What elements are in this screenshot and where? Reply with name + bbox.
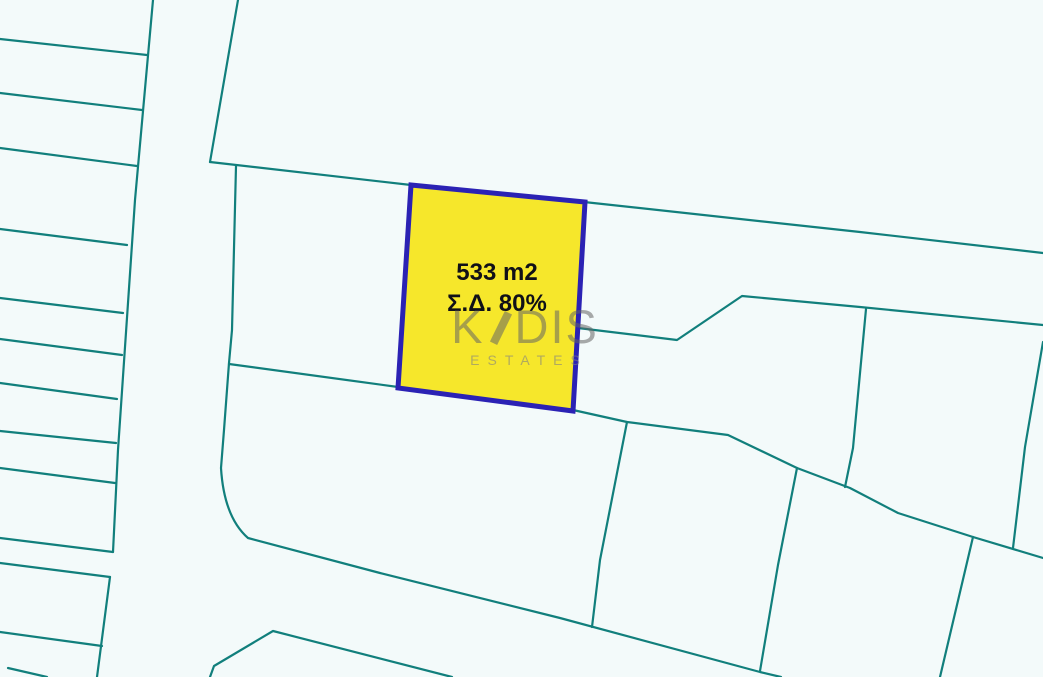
- watermark-letter-a-icon: [489, 311, 511, 345]
- west-parcel-line-7: [0, 383, 117, 399]
- plot-area-label: 533 m2: [412, 257, 582, 288]
- west-parcel-line-1: [0, 39, 147, 55]
- west-parcel-line-3: [0, 148, 137, 166]
- west-parcel-line-12: [0, 632, 102, 646]
- parcel-divider-5: [592, 422, 627, 627]
- west-parcel-line-11: [0, 563, 110, 577]
- watermark-subtitle: ESTATES: [430, 352, 620, 368]
- boundary-zigzag-east: [578, 296, 1043, 340]
- road-edge-right-upper: [210, 0, 238, 162]
- west-parcel-line-8: [0, 431, 116, 443]
- west-parcel-line-6: [0, 339, 122, 355]
- west-parcel-line-10: [0, 538, 113, 552]
- road-edge-left-lower: [97, 577, 110, 677]
- boundary-top-east: [584, 202, 1043, 253]
- street-south-edge: [210, 631, 452, 677]
- watermark-brand-suffix: DIS: [515, 300, 599, 353]
- parcel-divider-3: [940, 537, 973, 677]
- parcel-divider-2: [1013, 342, 1043, 548]
- boundary-bottom-long: [229, 364, 1043, 558]
- west-parcel-line-2: [0, 93, 142, 110]
- road-edge-left-upper: [113, 0, 153, 552]
- boundary-top-west: [210, 162, 411, 185]
- parcel-divider-4: [760, 468, 797, 671]
- west-parcel-line-13: [8, 668, 47, 677]
- parcel-divider-1: [845, 309, 866, 487]
- west-parcel-line-9: [0, 468, 115, 483]
- watermark-brand: KDIS: [430, 303, 620, 350]
- watermark-brand-prefix: K: [451, 300, 484, 353]
- west-parcel-line-5: [0, 298, 123, 313]
- west-parcel-line-4: [0, 229, 127, 245]
- plot-map: 533 m2 Σ.Δ. 80% KDIS ESTATES: [0, 0, 1043, 677]
